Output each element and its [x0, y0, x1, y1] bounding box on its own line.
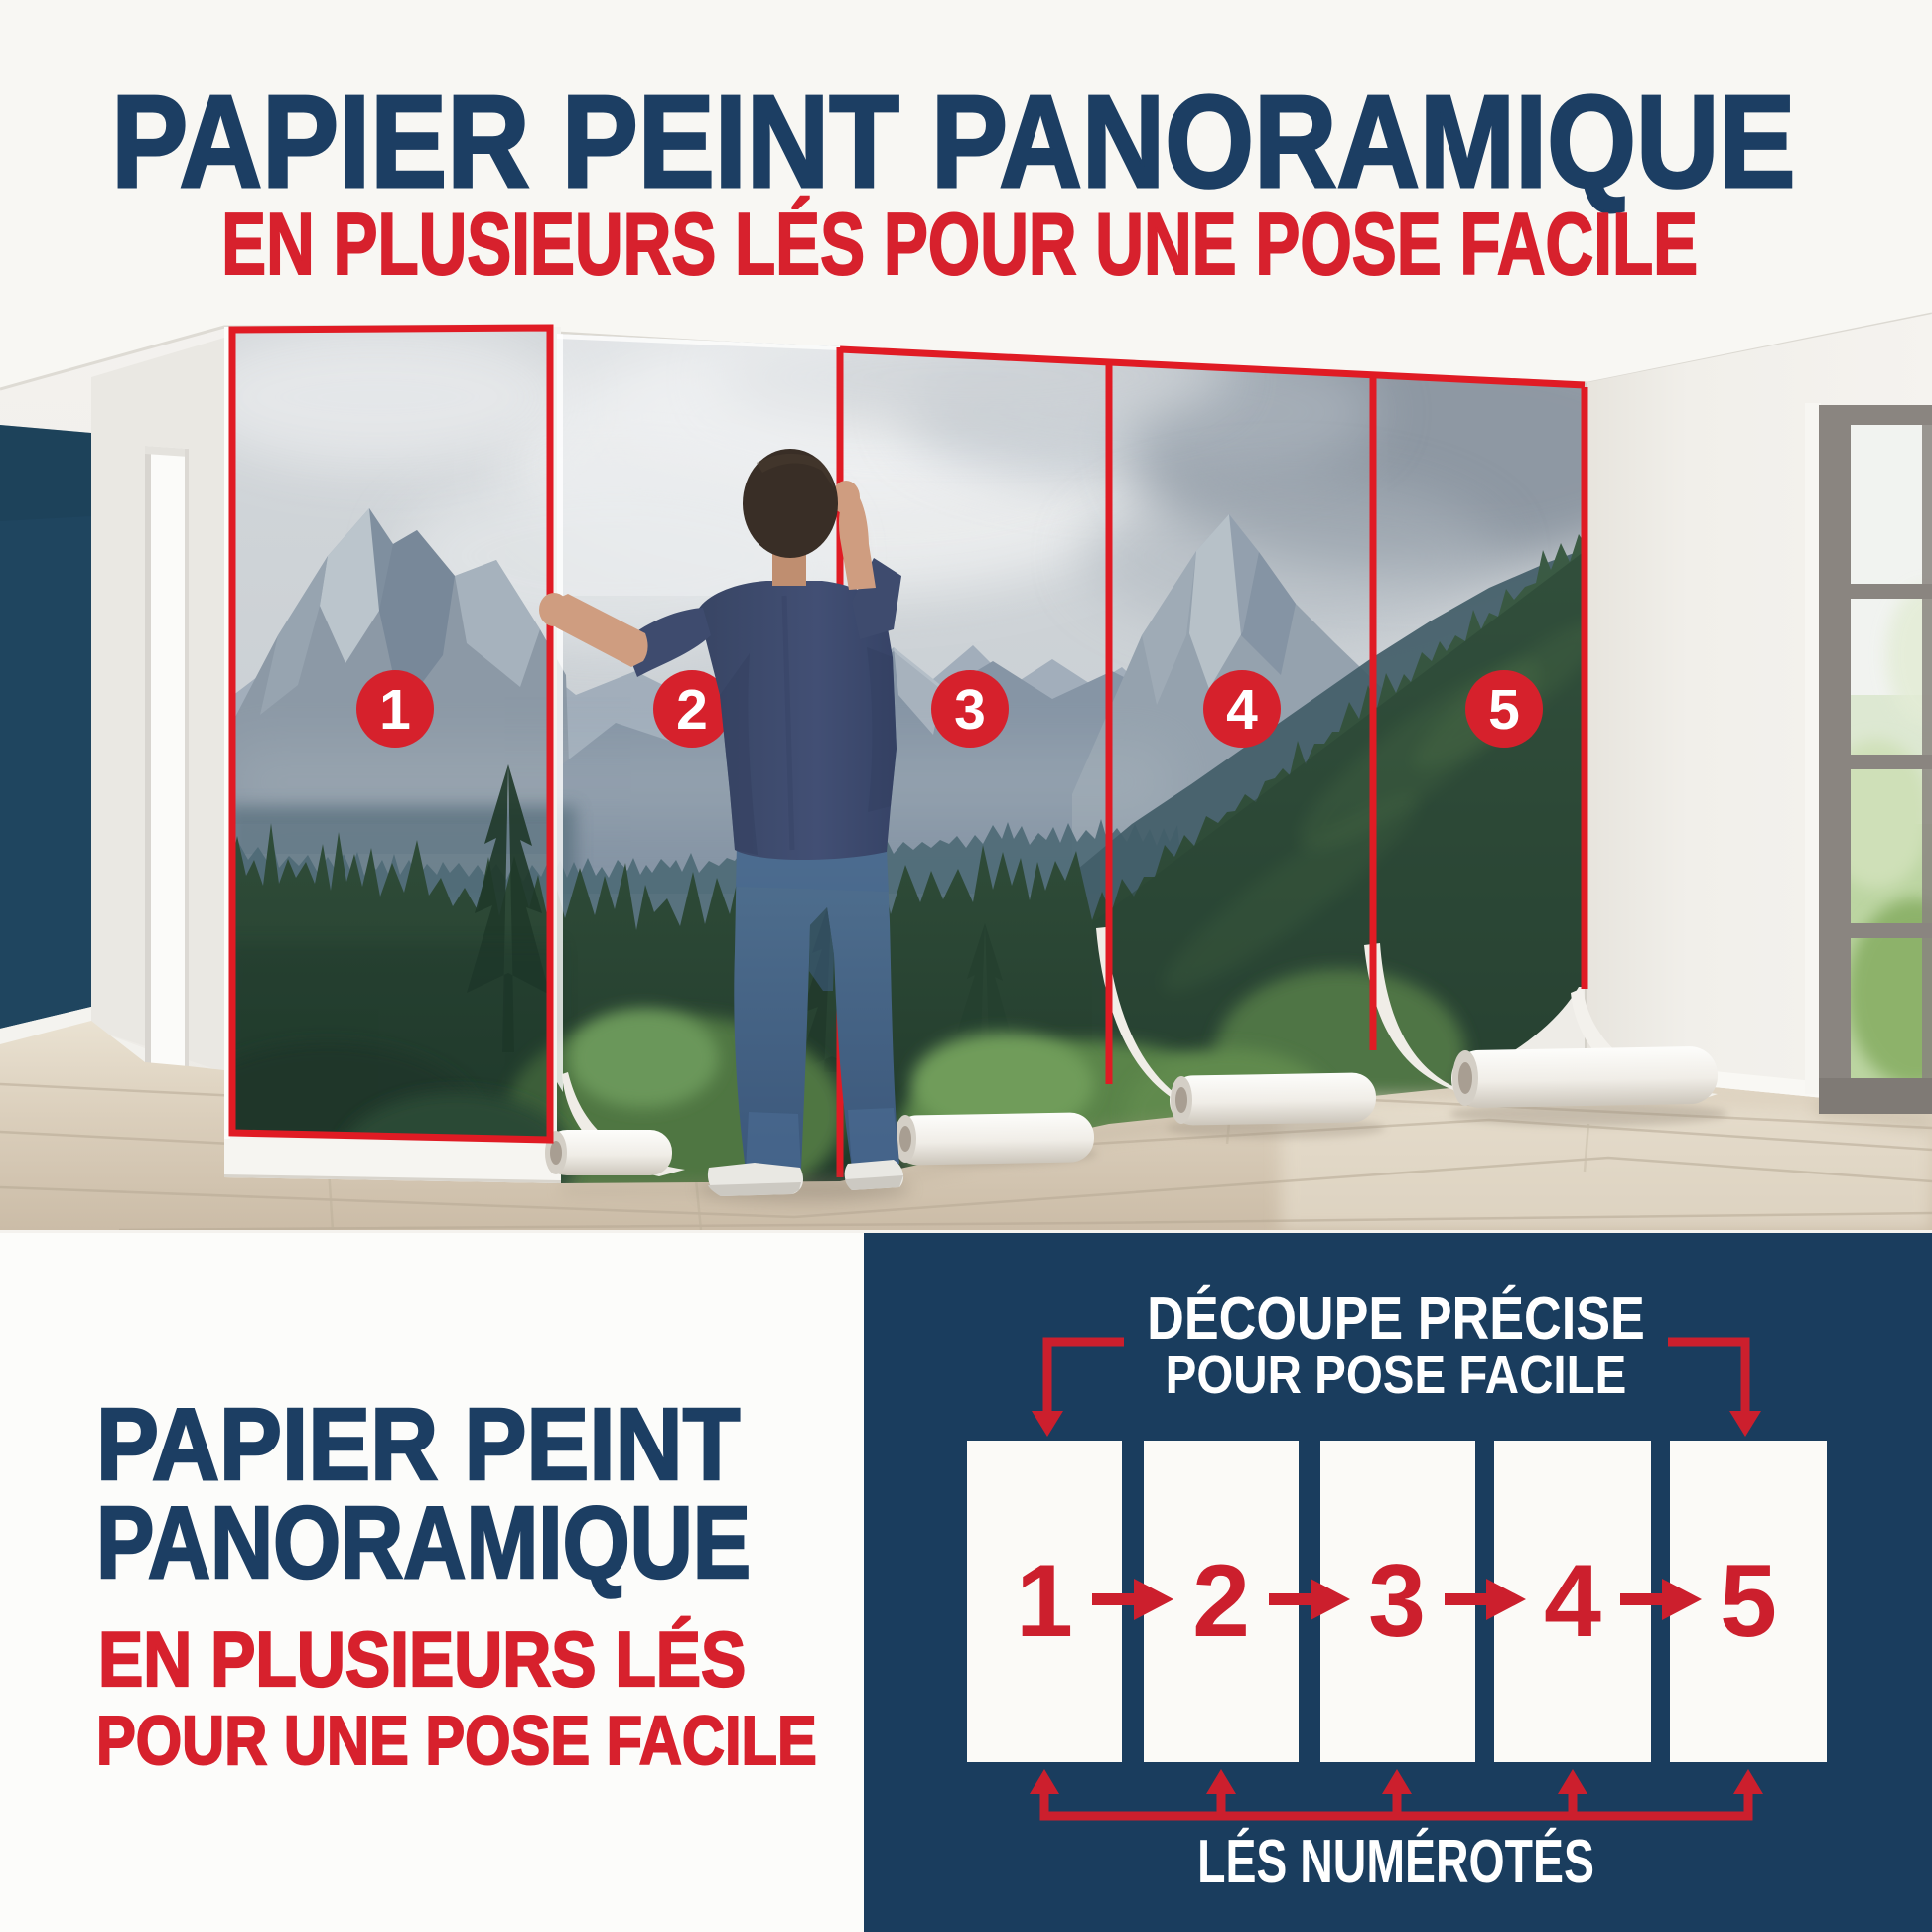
svg-text:4: 4: [1544, 1544, 1601, 1659]
svg-text:5: 5: [1720, 1544, 1777, 1659]
svg-text:DÉCOUPE PRÉCISE: DÉCOUPE PRÉCISE: [1147, 1285, 1645, 1353]
svg-text:LÉS NUMÉROTÉS: LÉS NUMÉROTÉS: [1197, 1826, 1594, 1895]
svg-text:3: 3: [1368, 1544, 1426, 1659]
svg-text:5: 5: [1488, 678, 1520, 742]
svg-text:1: 1: [1016, 1544, 1073, 1659]
svg-text:POUR POSE FACILE: POUR POSE FACILE: [1166, 1344, 1627, 1405]
svg-text:3: 3: [954, 678, 986, 742]
svg-text:2: 2: [676, 678, 708, 742]
svg-text:2: 2: [1192, 1544, 1250, 1659]
svg-text:4: 4: [1226, 678, 1258, 742]
svg-text:1: 1: [379, 678, 411, 742]
